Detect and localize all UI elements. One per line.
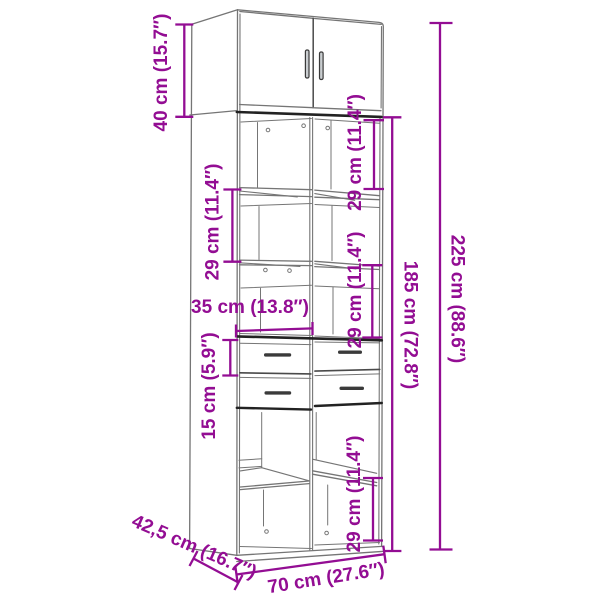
svg-text:225 cm (88.6″): 225 cm (88.6″) [447, 235, 468, 363]
svg-text:15 cm (5.9″): 15 cm (5.9″) [199, 332, 220, 439]
svg-text:29 cm (11.4″): 29 cm (11.4″) [203, 164, 224, 281]
svg-text:40 cm (15.7″): 40 cm (15.7″) [151, 14, 172, 132]
svg-text:29 cm (11.4″): 29 cm (11.4″) [345, 232, 366, 349]
svg-text:185 cm (72.8″): 185 cm (72.8″) [400, 261, 421, 389]
svg-text:35 cm (13.8″): 35 cm (13.8″) [191, 297, 309, 318]
svg-text:29 cm (11.4″): 29 cm (11.4″) [345, 94, 366, 211]
svg-text:29 cm (11.4″): 29 cm (11.4″) [344, 436, 365, 553]
